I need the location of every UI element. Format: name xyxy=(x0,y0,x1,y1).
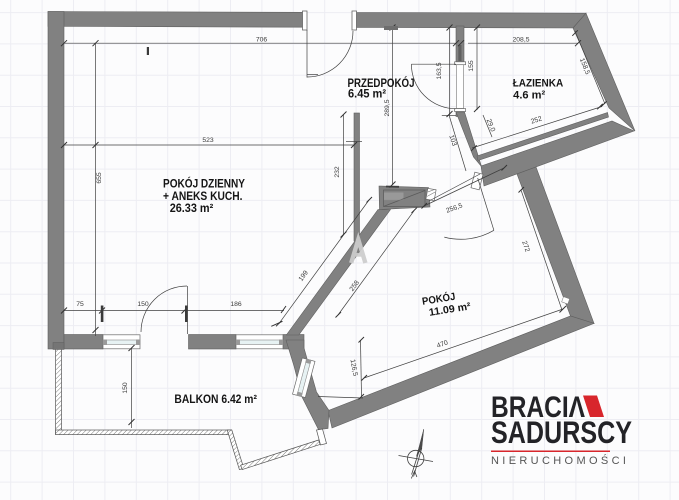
svg-text:523: 523 xyxy=(202,137,214,144)
svg-text:NIERUCHOMOŚCI: NIERUCHOMOŚCI xyxy=(491,454,629,467)
svg-text:150: 150 xyxy=(122,382,129,394)
svg-text:75: 75 xyxy=(76,301,84,308)
svg-text:163,5: 163,5 xyxy=(436,62,443,79)
svg-text:4.6 m²: 4.6 m² xyxy=(513,90,545,102)
svg-text:SADURSCY: SADURSCY xyxy=(491,414,632,450)
svg-text:BALKON 6.42 m²: BALKON 6.42 m² xyxy=(174,392,257,406)
svg-text:289,5: 289,5 xyxy=(384,99,391,116)
svg-text:655: 655 xyxy=(96,172,103,184)
svg-text:155: 155 xyxy=(468,60,475,72)
svg-text:208,5: 208,5 xyxy=(512,37,529,44)
svg-text:232: 232 xyxy=(334,166,341,178)
svg-text:186: 186 xyxy=(230,301,242,308)
svg-text:706: 706 xyxy=(256,37,268,44)
svg-text:ŁAZIENKA: ŁAZIENKA xyxy=(513,78,564,90)
svg-text:6.45 m²: 6.45 m² xyxy=(348,87,386,101)
svg-text:26.33 m²: 26.33 m² xyxy=(170,201,214,215)
svg-text:150: 150 xyxy=(137,301,149,308)
